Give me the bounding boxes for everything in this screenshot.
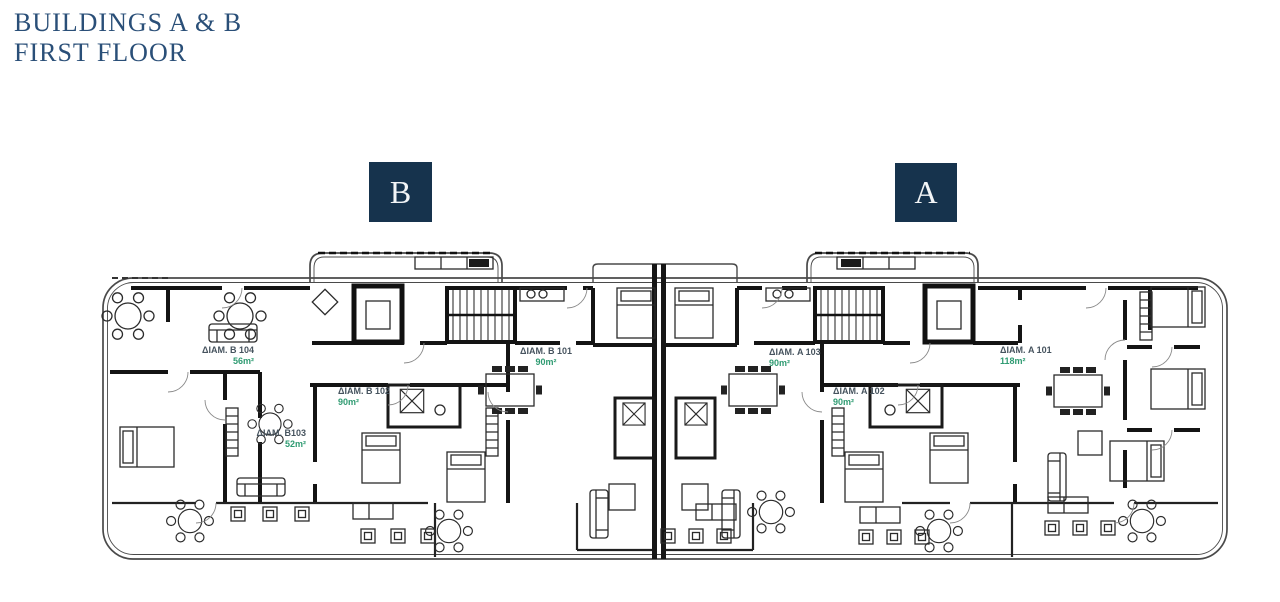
apartment-area: 90m² bbox=[833, 397, 888, 408]
apartment-name: ΔΙΑΜ. A 101 bbox=[1000, 345, 1062, 356]
apartment-name: ΔΙΑΜ. A 102 bbox=[833, 386, 888, 397]
apartment-area: 90m² bbox=[516, 357, 576, 368]
apartment-name: ΔΙΑΜ. A 103 bbox=[769, 347, 829, 358]
apartment-label-a102: ΔΙΑΜ. A 102 90m² bbox=[833, 386, 888, 408]
apartment-area: 90m² bbox=[338, 397, 393, 408]
apartment-label-a103: ΔΙΑΜ. A 103 90m² bbox=[769, 347, 829, 369]
apartment-name: ΔΙΑΜ. B103 bbox=[249, 428, 306, 439]
apartment-area: 52m² bbox=[249, 439, 306, 450]
floor-plan-drawing bbox=[0, 0, 1280, 602]
apartment-area: 56m² bbox=[196, 356, 254, 367]
apartment-name: ΔΙΑΜ. B 101 bbox=[516, 346, 576, 357]
floor-plan-page: BUILDINGS A & B FIRST FLOOR B A bbox=[0, 0, 1280, 602]
apartment-name: ΔΙΑΜ. B 104 bbox=[196, 345, 254, 356]
apartment-label-b103: ΔΙΑΜ. B103 52m² bbox=[249, 428, 306, 450]
apartment-name: ΔΙΑΜ. B 102 bbox=[338, 386, 393, 397]
apartment-label-b102: ΔΙΑΜ. B 102 90m² bbox=[338, 386, 393, 408]
apartment-label-b104: ΔΙΑΜ. B 104 56m² bbox=[196, 345, 254, 367]
apartment-area: 118m² bbox=[1000, 356, 1062, 367]
apartment-area: 90m² bbox=[769, 358, 829, 369]
apartment-label-b101: ΔΙΑΜ. B 101 90m² bbox=[516, 346, 576, 368]
apartment-label-a101: ΔΙΑΜ. A 101 118m² bbox=[1000, 345, 1062, 367]
